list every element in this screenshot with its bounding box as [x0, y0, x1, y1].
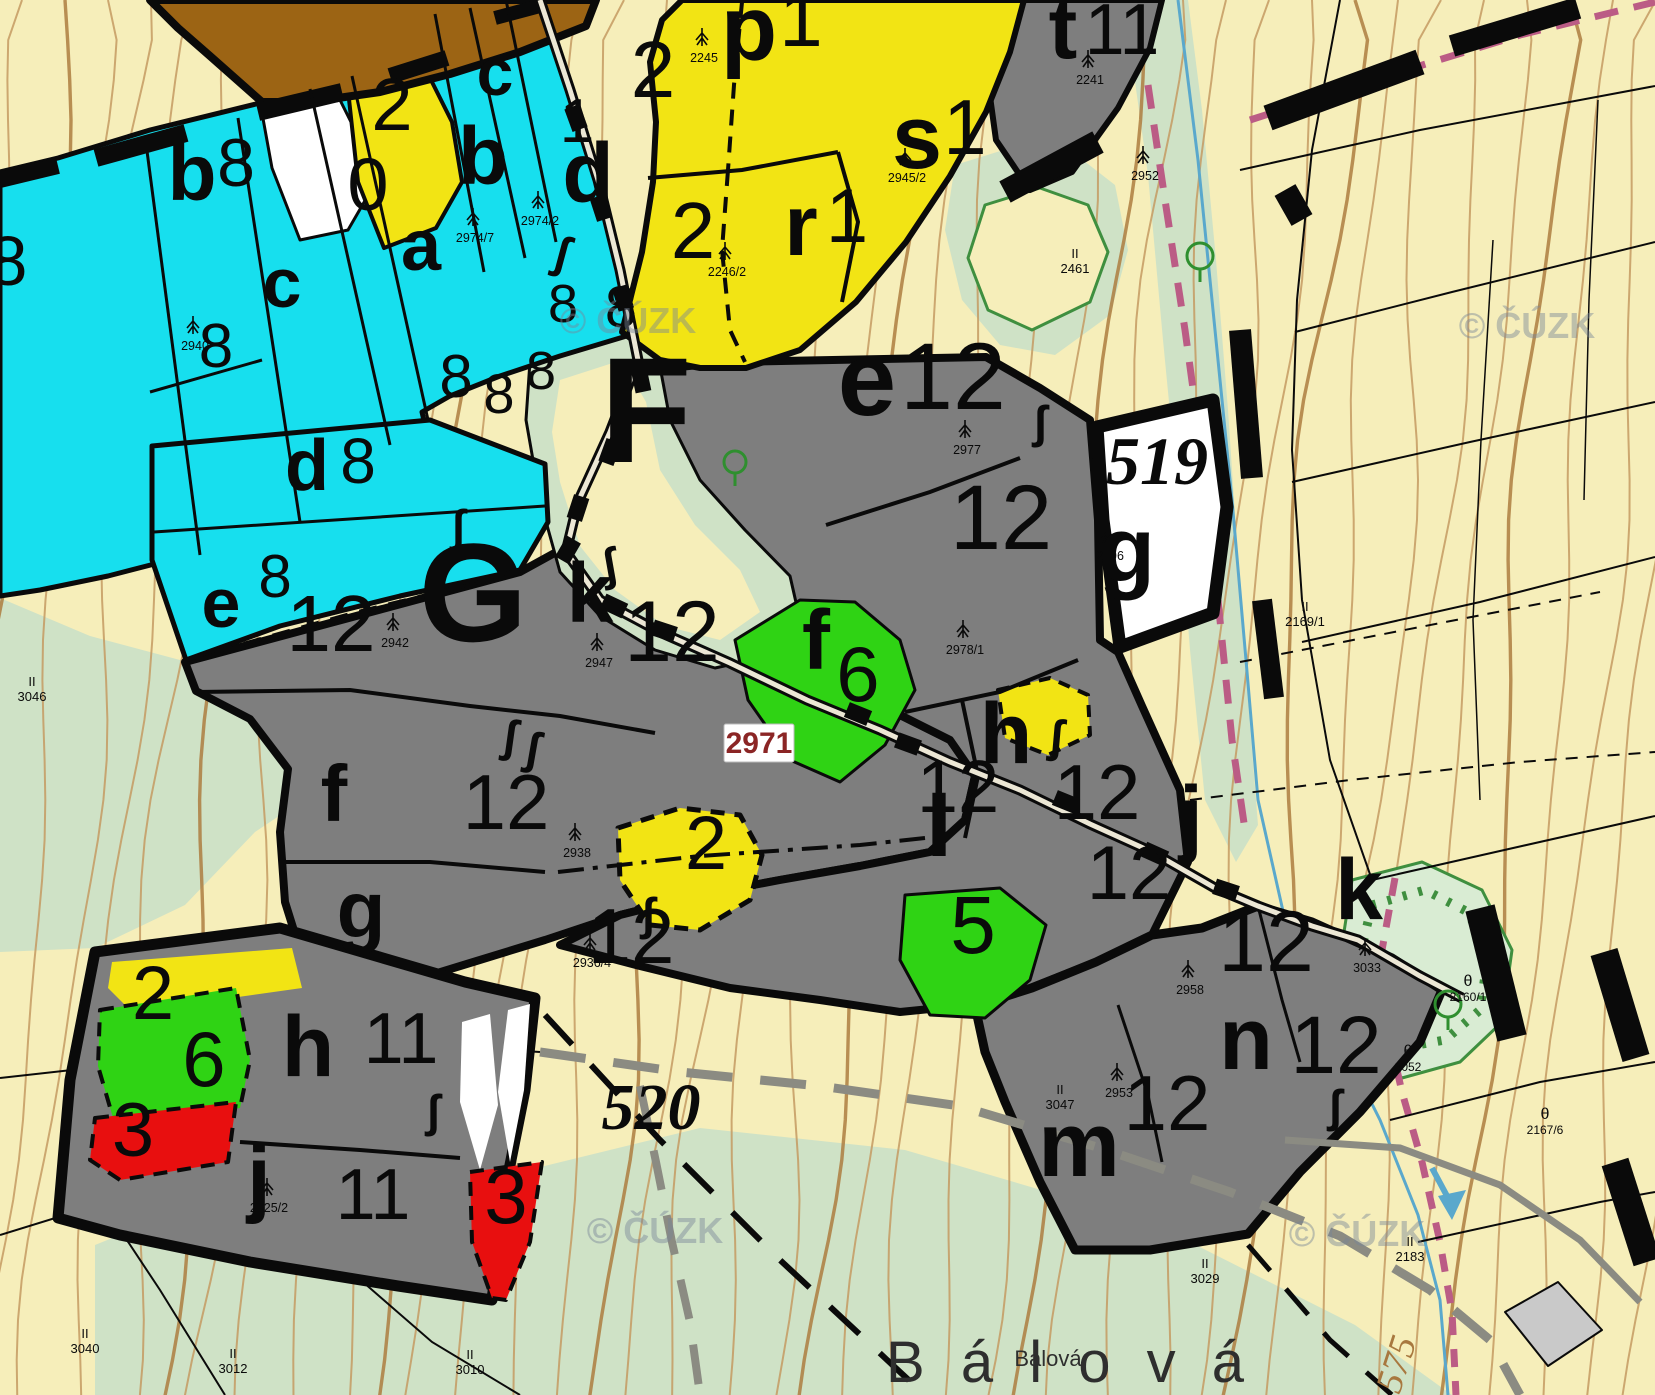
- label-8: 8: [483, 362, 514, 425]
- label-12: 12: [1290, 1000, 1381, 1091]
- land-use-mark: II: [28, 674, 35, 689]
- label-p: p: [721, 0, 777, 80]
- parcel-number: 2977: [953, 443, 981, 457]
- parcel-number: 2938: [563, 846, 591, 860]
- label-s: s: [892, 88, 942, 188]
- label-8: 8: [439, 343, 472, 410]
- label-11: 11: [364, 999, 439, 1079]
- land-use-mark: II: [466, 1347, 473, 1362]
- label-12: 12: [624, 584, 720, 680]
- label-b: b: [458, 111, 508, 202]
- parcel-number: 2167/6: [1527, 1123, 1564, 1137]
- label-c: c: [477, 35, 514, 109]
- ref-number: 2971: [726, 727, 793, 760]
- label-11: 11: [336, 1155, 411, 1235]
- label-12: 12: [287, 579, 376, 668]
- label-6: 6: [836, 630, 879, 718]
- label-j: j: [1177, 769, 1203, 865]
- label-8: 8: [217, 125, 255, 201]
- boundary-squiggle: ʃ: [1031, 396, 1050, 448]
- boundary-squiggle: ʃ: [424, 1085, 443, 1137]
- label-c: c: [263, 244, 302, 322]
- parcel-number: 2245: [690, 51, 718, 65]
- parcel-number: 2241: [1076, 73, 1104, 87]
- label-e: e: [202, 564, 241, 642]
- parcel-number: 2947: [585, 656, 613, 670]
- label-5: 5: [950, 880, 996, 971]
- parcel-number: 3033: [1353, 961, 1381, 975]
- label-12: 12: [1087, 831, 1172, 916]
- label-n: n: [1219, 989, 1273, 1088]
- label-12: 12: [950, 467, 1052, 569]
- label-6: 6: [182, 1015, 225, 1103]
- boundary-bar: [1262, 600, 1274, 698]
- parcel-number: 2974/7: [456, 231, 494, 245]
- label-F: F: [600, 326, 692, 494]
- label-Bálová: Bálová: [1014, 1346, 1082, 1371]
- boundary-bar: [1240, 330, 1252, 478]
- label-1: 1: [826, 174, 868, 259]
- label-G: G: [419, 514, 528, 671]
- parcel-number: 2461: [1061, 261, 1090, 276]
- label-519: 519: [1106, 423, 1208, 499]
- label-g: g: [1099, 499, 1155, 601]
- label-2: 2: [685, 801, 727, 886]
- label-2: 2: [671, 186, 716, 275]
- parcel-number: 3029: [1191, 1271, 1220, 1286]
- label-h: h: [980, 686, 1033, 782]
- label-b: b: [168, 128, 217, 217]
- label-I: I: [926, 774, 952, 876]
- label-12: 12: [900, 324, 1006, 430]
- parcel-number: 3040: [71, 1341, 100, 1356]
- label-12: 12: [1218, 894, 1314, 990]
- label-g: g: [337, 865, 386, 954]
- boundary-bar: [1285, 190, 1302, 220]
- label-k: k: [567, 546, 614, 640]
- label-h: h: [282, 999, 335, 1095]
- label-e: e: [838, 321, 896, 438]
- label-d: d: [562, 126, 613, 220]
- land-use-mark: II: [1201, 1256, 1208, 1271]
- land-use-mark: II: [1301, 599, 1308, 614]
- land-use-mark: II: [1071, 246, 1078, 261]
- parcel-number: 2942: [381, 636, 409, 650]
- parcel-number: 3012: [219, 1361, 248, 1376]
- label-d: d: [285, 426, 329, 506]
- label-a: a: [401, 206, 442, 286]
- parcel-number: 2958: [1176, 983, 1204, 997]
- parcel-number: 2974/2: [521, 214, 559, 228]
- theta-mark: θ: [1464, 973, 1473, 990]
- cuzk-watermark: © ČÚZK: [1289, 1212, 1426, 1254]
- label-1: 1: [779, 0, 822, 63]
- label-12: 12: [588, 892, 675, 980]
- parcel-number: 3052: [1395, 1060, 1422, 1074]
- label-1: 1: [943, 83, 986, 171]
- label-11: 11: [1085, 0, 1160, 70]
- label-12: 12: [463, 758, 550, 846]
- label-8: 8: [199, 312, 233, 381]
- label-12: 12: [1054, 748, 1141, 836]
- label-j: j: [245, 1129, 271, 1225]
- label-3: 3: [484, 1152, 527, 1240]
- land-use-mark: II: [229, 1346, 236, 1361]
- label-r: r: [784, 178, 817, 274]
- parcel-number: 2952: [1131, 169, 1159, 183]
- parcel-number: 3046: [18, 689, 47, 704]
- label-2: 2: [631, 25, 676, 114]
- parcel-number: 2160/1: [1450, 990, 1487, 1004]
- label-520: 520: [602, 1071, 701, 1144]
- label-12: 12: [1124, 1059, 1211, 1147]
- label-8: 8: [340, 425, 376, 497]
- label-f: f: [802, 593, 831, 687]
- label-t: t: [1049, 0, 1078, 77]
- label-f: f: [321, 749, 348, 838]
- label-8: 8: [0, 222, 27, 300]
- label-m: m: [1038, 1094, 1120, 1196]
- label-3: 3: [112, 1088, 154, 1173]
- cuzk-watermark: © ČÚZK: [1459, 304, 1596, 346]
- cuzk-watermark: © ČÚZK: [587, 1209, 724, 1251]
- land-use-mark: II: [81, 1326, 88, 1341]
- map-canvas: 29402974/72974/222452246/22945/222412952…: [0, 0, 1655, 1395]
- theta-mark: θ: [1541, 1106, 1550, 1123]
- parcel-number: 2978/1: [946, 643, 984, 657]
- label-k: k: [1335, 842, 1383, 938]
- parcel-number: 2169/1: [1285, 614, 1325, 629]
- cadastral-forest-map[interactable]: 29402974/72974/222452246/22945/222412952…: [0, 0, 1655, 1395]
- parcel-number: 3010: [456, 1362, 485, 1377]
- label-2: 2: [371, 63, 412, 146]
- label-0: 0: [347, 143, 388, 226]
- label-2: 2: [132, 951, 174, 1036]
- label-8: 8: [526, 341, 556, 401]
- theta-mark: θ: [1404, 1043, 1413, 1060]
- cuzk-watermark: © ČÚZK: [560, 299, 697, 341]
